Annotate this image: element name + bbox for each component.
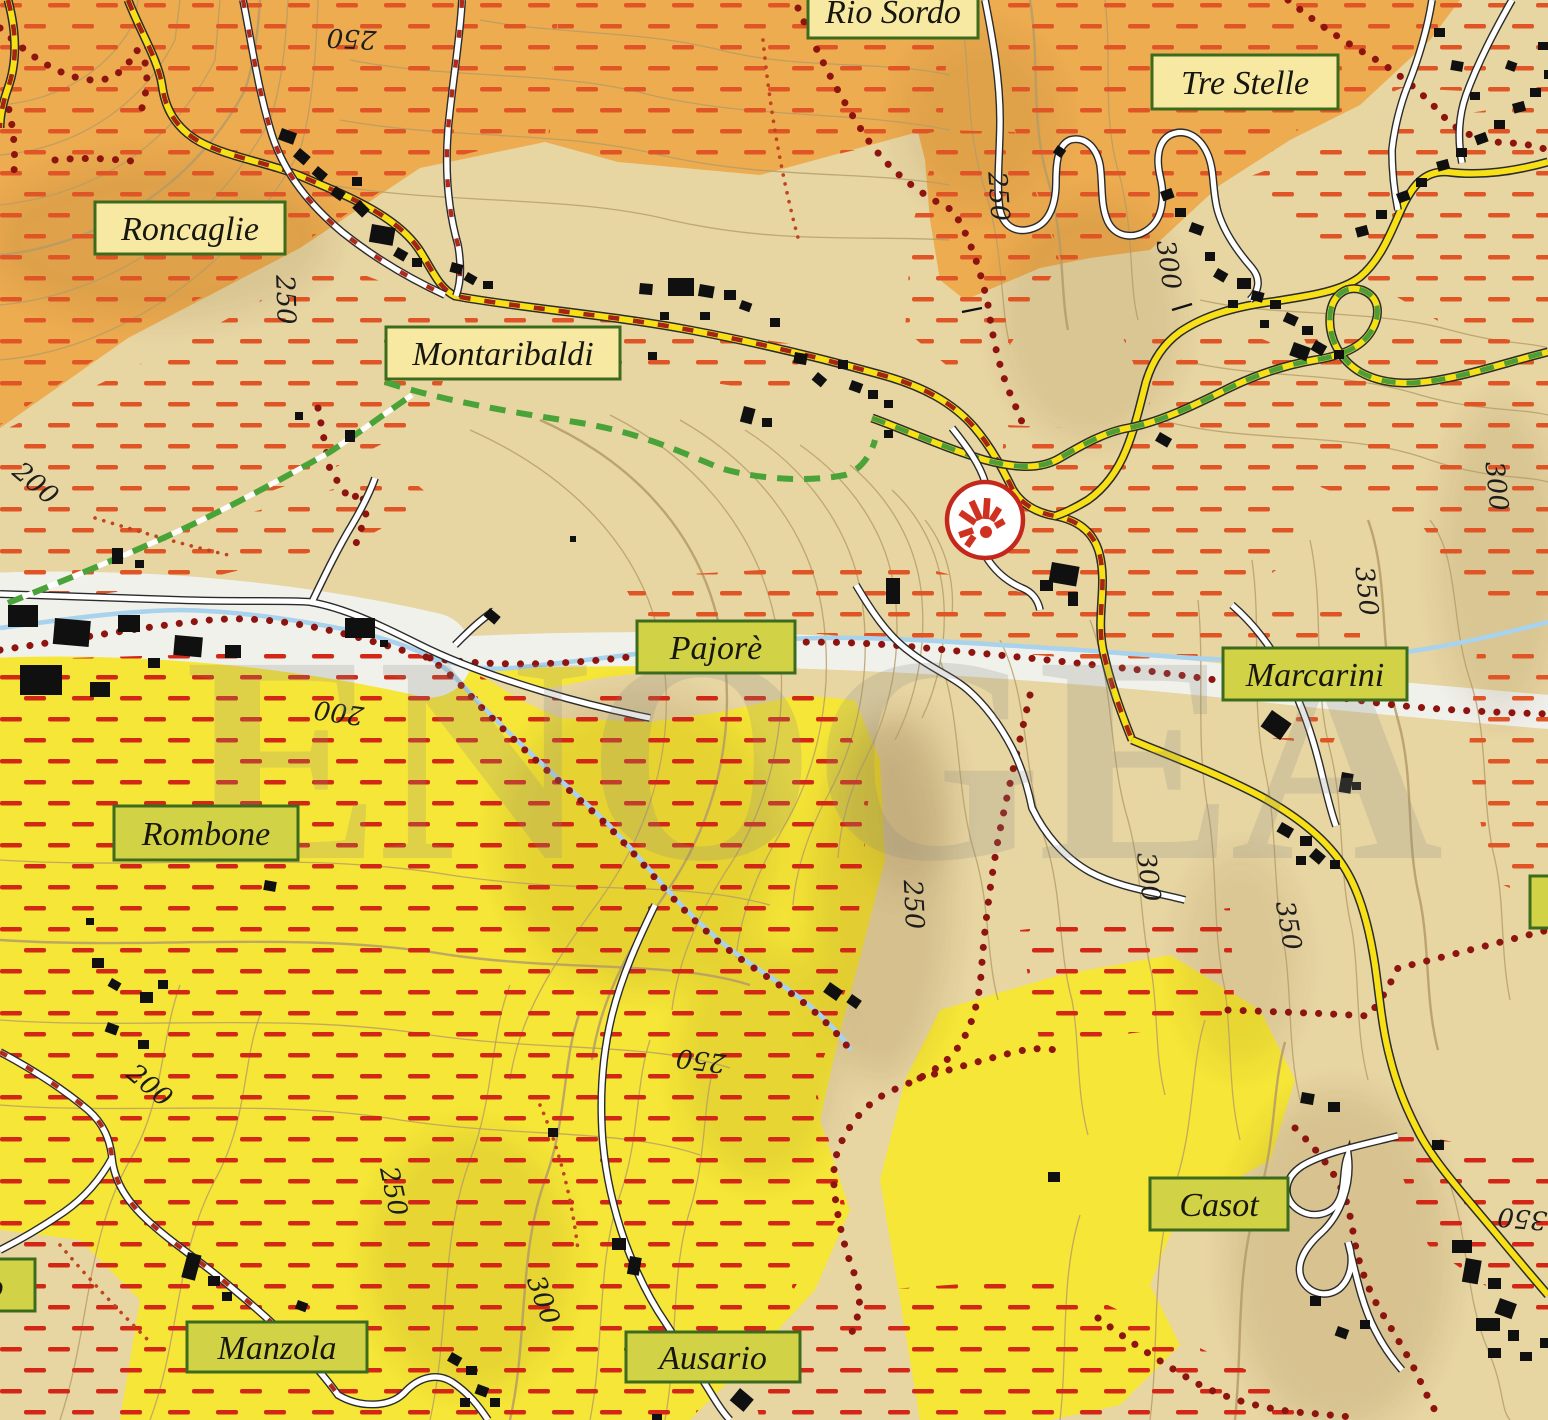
place-label-montaribaldi: Montaribaldi	[386, 327, 620, 379]
building-footprint	[884, 400, 893, 408]
building-footprint	[135, 560, 144, 568]
building-footprint	[548, 1128, 558, 1137]
building-footprint	[1040, 580, 1053, 591]
building-footprint	[639, 283, 653, 295]
building-footprint	[1302, 326, 1313, 335]
place-label-tre-stelle: Tre Stelle	[1152, 55, 1338, 109]
building-footprint	[53, 618, 91, 647]
building-footprint	[1416, 178, 1427, 187]
place-label-roncaglie: Roncaglie	[95, 202, 285, 254]
place-label-cut-left: o	[0, 1259, 35, 1311]
place-label-rio-sordo: Rio Sordo	[808, 0, 978, 38]
building-footprint	[648, 352, 657, 360]
building-footprint	[138, 1040, 149, 1049]
building-footprint	[345, 430, 355, 442]
building-footprint	[412, 258, 422, 267]
building-footprint	[698, 284, 715, 298]
building-footprint	[90, 682, 110, 697]
building-footprint	[1300, 1092, 1315, 1105]
building-footprint	[466, 1366, 477, 1375]
place-label-casot: Casot	[1150, 1178, 1288, 1230]
building-footprint	[1540, 1338, 1548, 1348]
svg-text:Rombone: Rombone	[141, 816, 270, 853]
svg-text:Marcarini: Marcarini	[1245, 657, 1385, 694]
svg-text:o: o	[0, 1268, 4, 1305]
contour-elevation-label: 250	[981, 170, 1014, 223]
building-footprint	[1310, 1296, 1321, 1306]
building-footprint	[1450, 60, 1464, 72]
svg-text:Rio Sordo: Rio Sordo	[824, 0, 961, 31]
building-footprint	[1530, 88, 1541, 97]
contour-elevation-label: 250	[675, 1042, 729, 1078]
map-canvas: 250 250 200 250 300 300 350 200 200 250 …	[0, 0, 1548, 1420]
building-footprint	[118, 615, 140, 632]
building-footprint	[1456, 148, 1467, 157]
place-label-pajore: Pajorè	[637, 621, 795, 673]
building-footprint	[652, 1414, 662, 1420]
svg-text:Pajorè: Pajorè	[669, 630, 763, 667]
svg-text:Casot: Casot	[1179, 1187, 1260, 1224]
building-footprint	[770, 318, 780, 327]
building-footprint	[295, 412, 303, 420]
sunburst-dot-icon	[980, 526, 992, 538]
building-footprint	[1328, 1102, 1340, 1112]
building-footprint	[490, 1398, 500, 1407]
place-label-manzola: Manzola	[187, 1322, 367, 1372]
building-footprint	[112, 548, 123, 564]
building-footprint	[483, 281, 493, 289]
building-footprint	[884, 430, 893, 438]
marker-circle	[947, 482, 1023, 558]
building-footprint	[1260, 320, 1269, 328]
building-footprint	[838, 360, 848, 369]
place-label-cut-right	[1530, 876, 1548, 928]
label-box	[1530, 876, 1548, 928]
building-footprint	[1452, 1240, 1472, 1253]
building-footprint	[668, 278, 694, 296]
winery-sun-marker[interactable]	[947, 482, 1023, 558]
building-footprint	[1434, 28, 1445, 37]
building-footprint	[1175, 208, 1186, 217]
building-footprint	[1538, 42, 1548, 50]
contour-elevation-label: 250	[269, 273, 301, 325]
building-footprint	[570, 536, 576, 542]
building-footprint	[1334, 350, 1344, 359]
building-footprint	[1476, 1318, 1500, 1331]
building-footprint	[1237, 278, 1251, 289]
building-footprint	[460, 1398, 470, 1407]
building-footprint	[762, 418, 772, 427]
building-footprint	[724, 290, 736, 300]
svg-text:Ausario: Ausario	[657, 1340, 767, 1377]
building-footprint	[868, 390, 878, 399]
building-footprint	[222, 1292, 232, 1301]
building-footprint	[1360, 1320, 1370, 1329]
enogea-watermark: ENOGEA	[185, 595, 1443, 922]
building-footprint	[8, 605, 38, 627]
building-footprint	[352, 177, 362, 186]
building-footprint	[20, 665, 62, 695]
building-footprint	[86, 918, 94, 925]
place-label-rombone: Rombone	[114, 806, 298, 860]
svg-text:Tre Stelle: Tre Stelle	[1181, 65, 1309, 102]
place-label-marcarini: Marcarini	[1223, 648, 1407, 700]
building-footprint	[208, 1276, 220, 1286]
building-footprint	[1048, 1172, 1060, 1182]
building-footprint	[158, 980, 168, 989]
building-footprint	[1228, 300, 1238, 308]
svg-text:Manzola: Manzola	[217, 1330, 337, 1367]
contour-elevation-label: 350	[1496, 1201, 1548, 1235]
building-footprint	[1494, 120, 1505, 129]
contour-elevation-label: 300	[1478, 460, 1513, 513]
building-footprint	[612, 1238, 626, 1250]
building-footprint	[1544, 70, 1548, 79]
building-footprint	[660, 312, 669, 320]
svg-text:Montaribaldi: Montaribaldi	[411, 336, 593, 373]
building-footprint	[1470, 92, 1480, 100]
building-footprint	[1270, 300, 1281, 309]
contour-elevation-label: 250	[326, 22, 378, 55]
building-footprint	[793, 352, 808, 365]
topographic-map: 250 250 200 250 300 300 350 200 200 250 …	[0, 0, 1548, 1420]
building-footprint	[1488, 1278, 1501, 1289]
building-footprint	[1205, 252, 1215, 261]
place-label-ausario: Ausario	[626, 1332, 800, 1382]
building-footprint	[700, 312, 710, 320]
building-footprint	[1376, 210, 1387, 219]
building-footprint	[148, 658, 160, 668]
building-footprint	[140, 992, 153, 1003]
svg-text:Roncaglie: Roncaglie	[120, 211, 259, 248]
building-footprint	[1488, 1348, 1501, 1358]
building-footprint	[1432, 1140, 1444, 1150]
building-footprint	[92, 958, 104, 968]
building-footprint	[1520, 1352, 1532, 1361]
label-box	[0, 1259, 35, 1311]
building-footprint	[1508, 1330, 1519, 1341]
